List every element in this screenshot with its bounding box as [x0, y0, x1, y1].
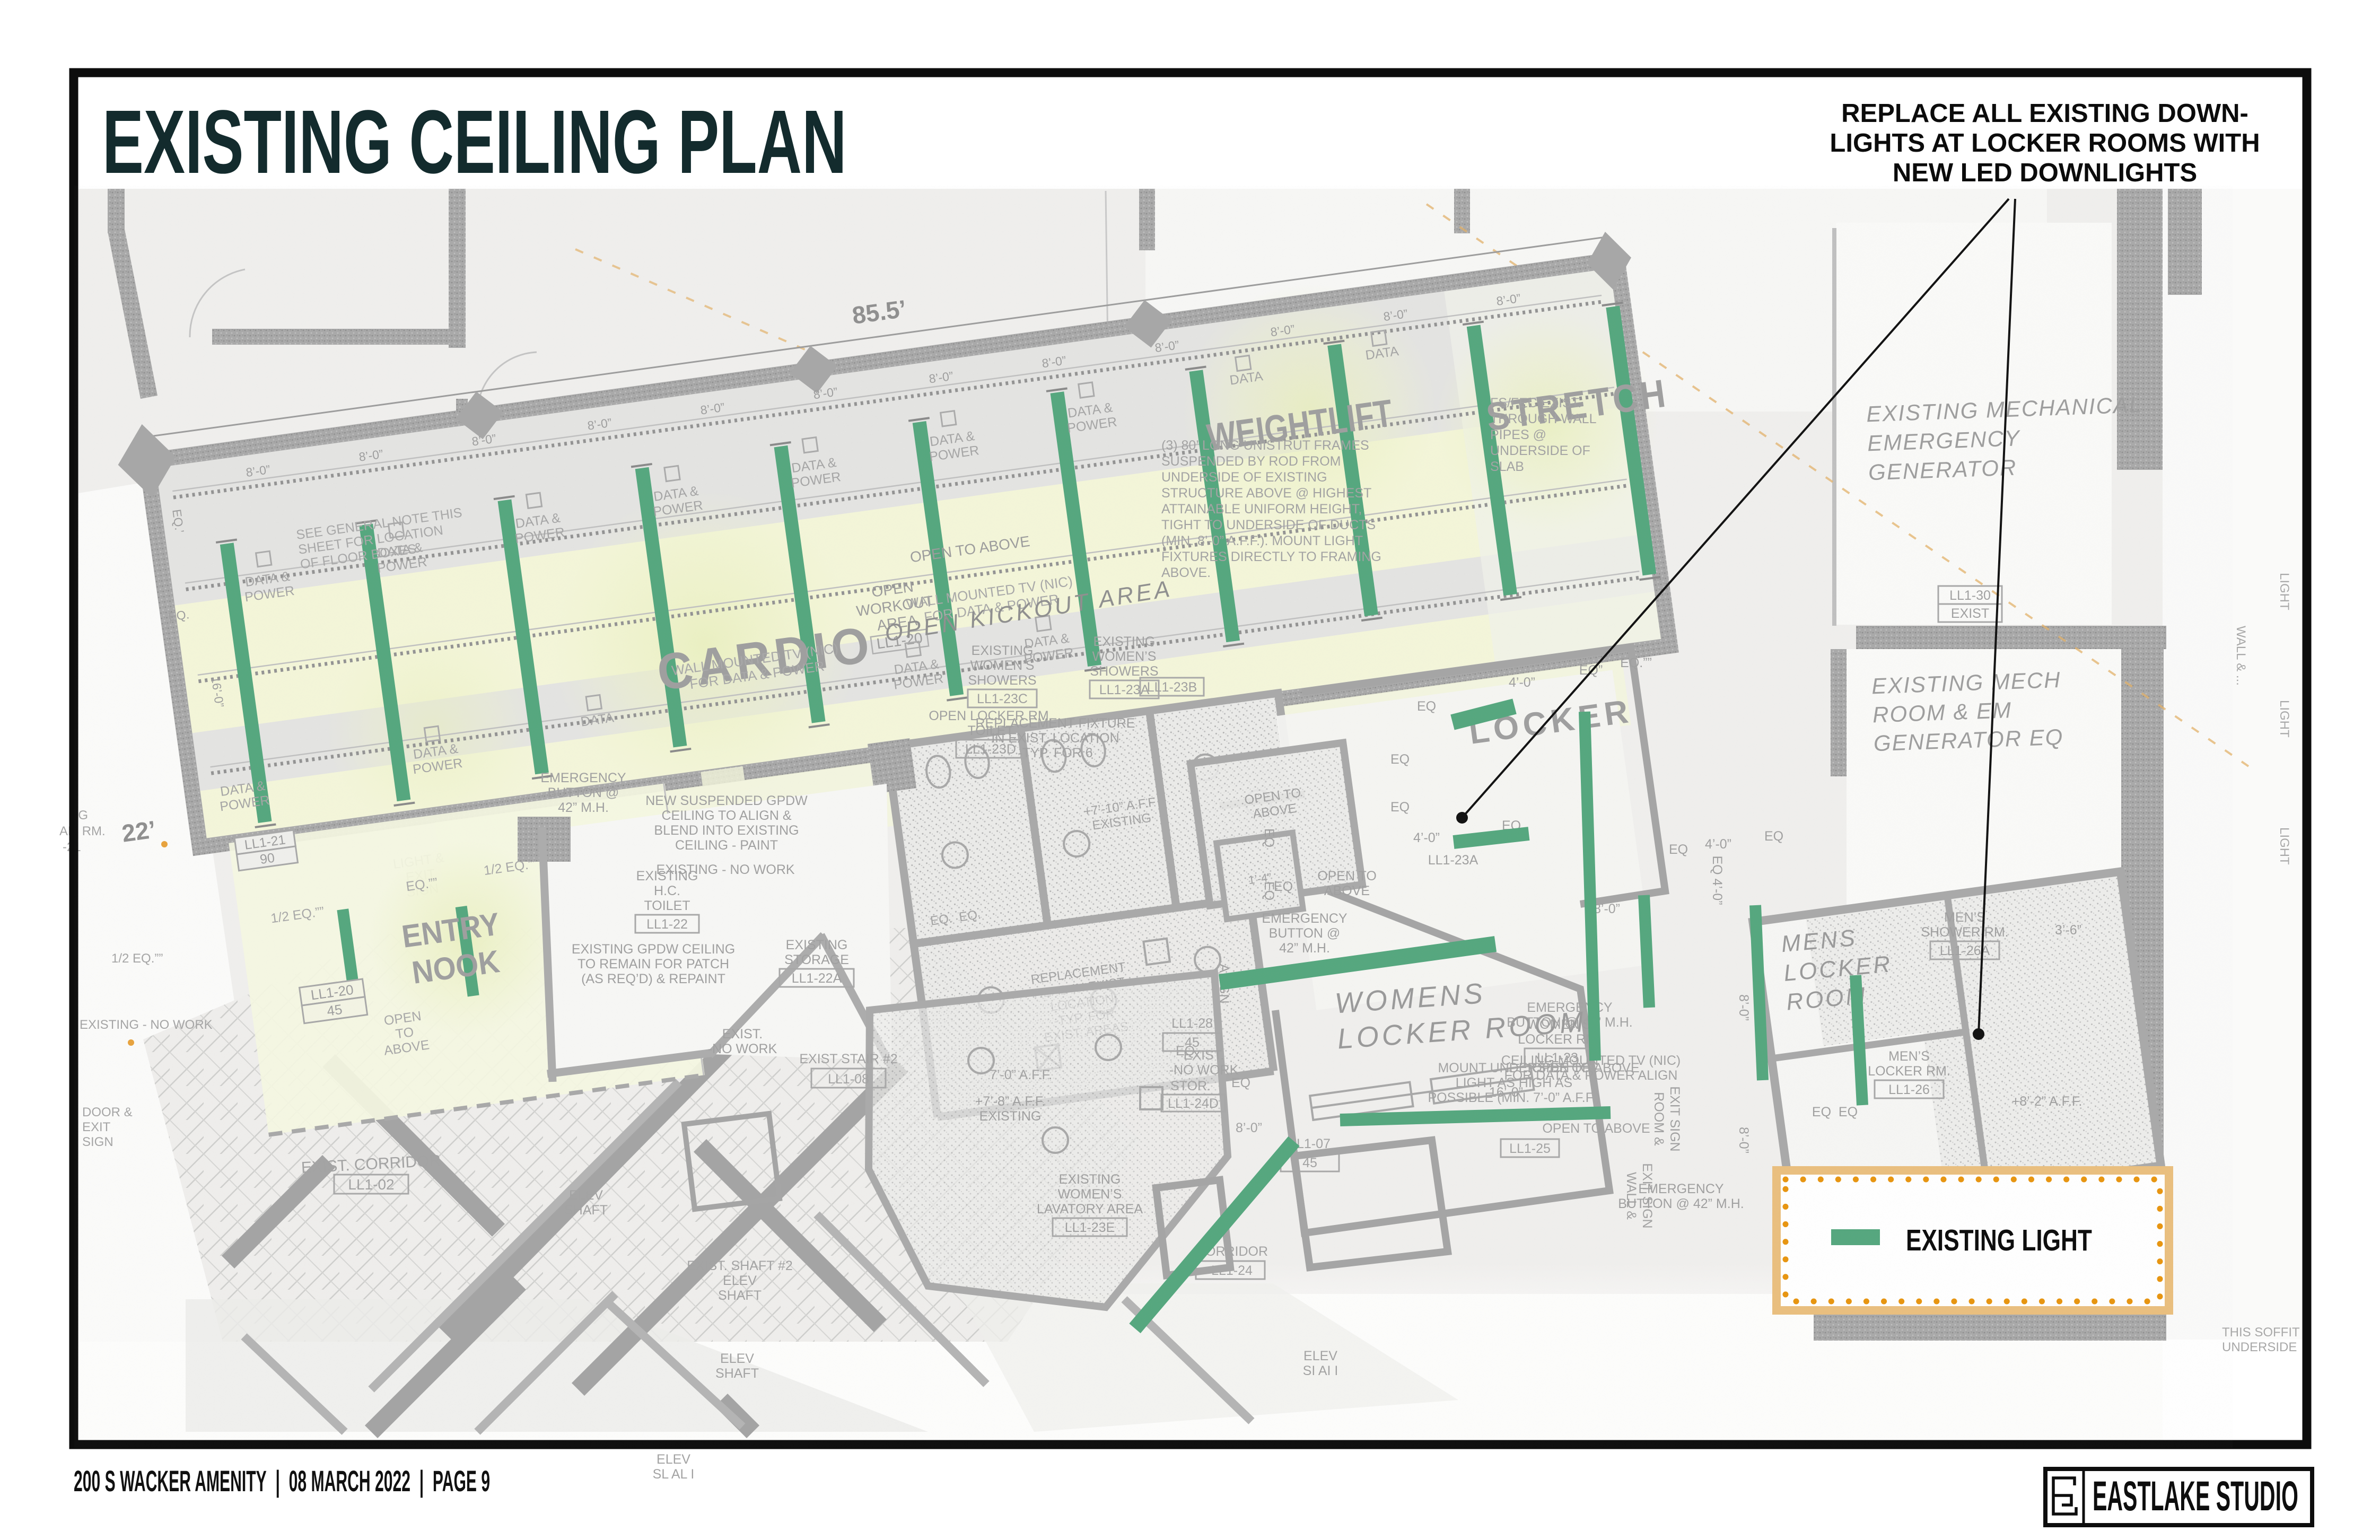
svg-text:EXISTING CEILING PLAN: EXISTING CEILING PLAN: [102, 91, 847, 192]
svg-text:NEW LED DOWNLIGHTS: NEW LED DOWNLIGHTS: [1893, 159, 2197, 187]
svg-text:UNDERSIDE: UNDERSIDE: [2222, 1340, 2297, 1354]
svg-text:EASTLAKE STUDIO: EASTLAKE STUDIO: [2093, 1473, 2298, 1520]
svg-text:WALL & ...: WALL & ...: [2234, 626, 2248, 686]
svg-text:ELEV: ELEV: [657, 1452, 690, 1467]
svg-text:SL AL I: SL AL I: [653, 1467, 695, 1482]
svg-text:REPLACE ALL EXISTING DOWN-: REPLACE ALL EXISTING DOWN-: [1841, 99, 2248, 128]
svg-text:THIS SOFFIT: THIS SOFFIT: [2222, 1325, 2300, 1340]
svg-text:200 S WACKER AMENITY | 08 MA: 200 S WACKER AMENITY | 08 MARCH 2022 | P…: [74, 1464, 490, 1499]
svg-text:LIGHT: LIGHT: [2277, 827, 2291, 865]
svg-text:LIGHT: LIGHT: [2277, 573, 2291, 610]
svg-text:LIGHTS AT LOCKER ROOMS WITH: LIGHTS AT LOCKER ROOMS WITH: [1830, 129, 2260, 157]
svg-text:LIGHT: LIGHT: [2277, 700, 2291, 738]
